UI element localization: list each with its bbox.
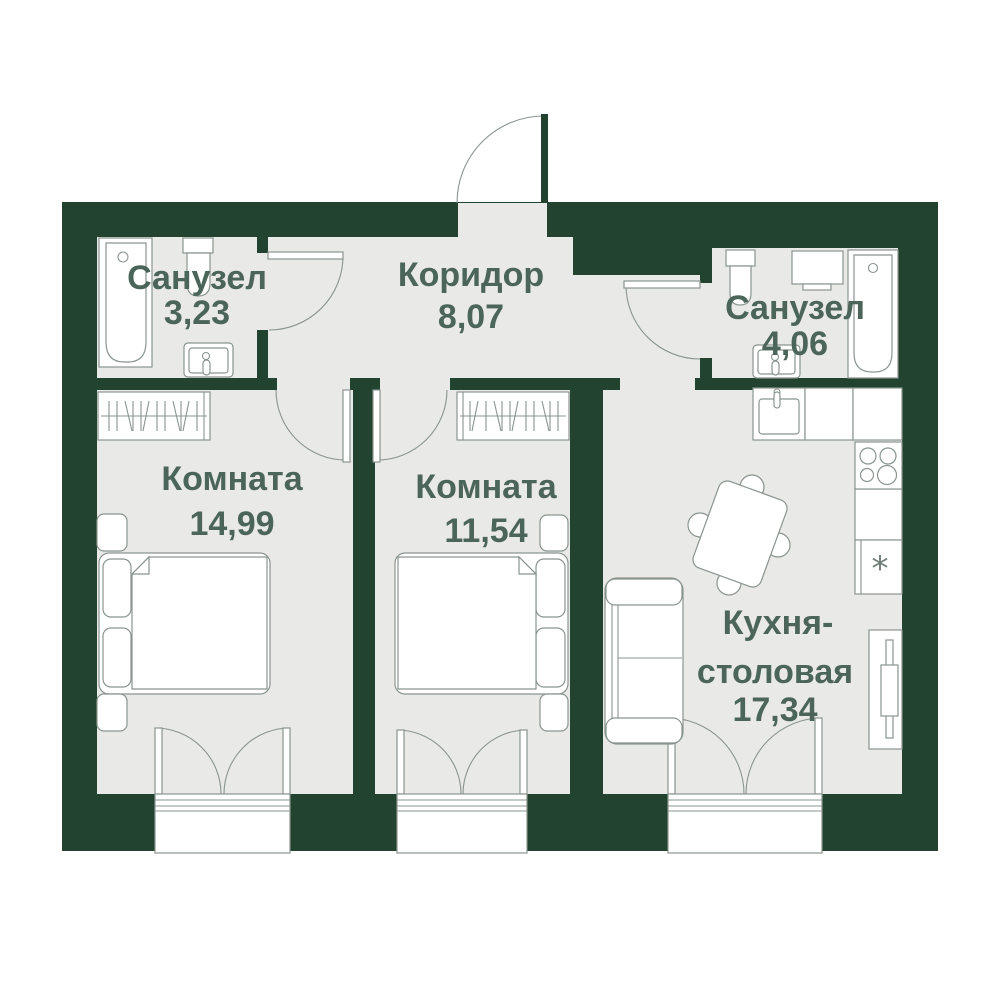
sofa-armrest — [606, 579, 682, 605]
bedroom-1-label: Комната — [161, 460, 303, 498]
floor-plan-drawing: * Санузел 3,23 Коридор 8,07 Санузел 4,06… — [0, 0, 1000, 1000]
corridor-floor-right — [572, 275, 700, 378]
bathroom-1-label: Санузел — [127, 259, 267, 297]
bedroom-2-door-opening — [380, 377, 450, 391]
wardrobe-2 — [457, 392, 569, 440]
burner — [878, 466, 897, 485]
bathroom-2-area: 4,06 — [762, 325, 828, 363]
faucet-icon — [203, 360, 210, 375]
counter-segment — [855, 489, 902, 540]
corridor-area: 8,07 — [438, 298, 504, 336]
bedroom-1-door-leaf — [343, 390, 350, 462]
bedroom-2-door-leaf — [373, 390, 380, 462]
nightstand — [97, 514, 127, 551]
bathroom-1-area: 3,23 — [164, 294, 230, 332]
entrance-recess-floor — [458, 203, 547, 238]
radiator — [869, 630, 902, 749]
toilet-tank — [726, 250, 755, 266]
window-frame — [155, 794, 290, 853]
burner — [880, 448, 896, 464]
stove — [855, 442, 902, 489]
pillow — [536, 628, 565, 687]
corridor-kitchen-opening — [620, 377, 695, 391]
nightstand — [97, 694, 127, 731]
bed-2 — [395, 553, 568, 694]
window-sash — [155, 728, 162, 794]
bathroom-2-label: Санузел — [725, 289, 865, 327]
sofa — [605, 578, 683, 744]
washing-machine — [792, 251, 843, 290]
bathroom-2-door-leaf — [624, 281, 700, 288]
pillow — [536, 559, 565, 617]
mattress — [398, 557, 536, 689]
kitchen-label-line1: Кухня- — [723, 604, 834, 642]
nightstand — [540, 694, 568, 731]
fridge-mark: * — [872, 549, 889, 589]
bed-1 — [99, 553, 270, 694]
window-sash — [283, 728, 290, 794]
burner — [860, 448, 876, 464]
bedroom-1-door-opening — [277, 377, 350, 391]
counter-segment — [853, 388, 902, 440]
burner — [861, 469, 874, 482]
fridge: * — [855, 540, 902, 594]
sofa-armrest — [606, 718, 682, 743]
kitchen-label-line2: столовая — [697, 653, 853, 691]
entrance-door — [457, 114, 548, 203]
sink-bathroom-1 — [184, 343, 233, 377]
entrance-door-leaf — [541, 114, 548, 203]
corridor-label: Коридор — [398, 256, 544, 294]
wardrobe-1 — [98, 392, 210, 440]
faucet-icon — [772, 361, 779, 375]
entrance-door-arc — [457, 116, 544, 203]
window-sash — [397, 730, 404, 794]
window-frame — [397, 794, 527, 853]
pillow — [103, 559, 131, 617]
kitchen-area: 17,34 — [732, 691, 817, 729]
counter-segment — [805, 388, 853, 440]
mattress — [132, 557, 267, 689]
bedroom-2-label: Комната — [415, 468, 557, 506]
bathroom-2-door-opening — [699, 283, 713, 358]
floor-plan: * Санузел 3,23 Коридор 8,07 Санузел 4,06… — [0, 0, 1000, 1000]
window-sash — [520, 730, 527, 794]
bedroom-1-area: 14,99 — [189, 505, 274, 543]
bathroom-1-door-leaf — [268, 252, 343, 259]
pillow — [103, 628, 131, 687]
toilet-tank — [183, 238, 213, 253]
faucet-icon — [774, 392, 780, 408]
window-frame — [668, 794, 822, 853]
nightstand — [540, 515, 568, 551]
bathtub-1 — [99, 238, 152, 367]
bedroom-2-area: 11,54 — [444, 512, 527, 550]
window-sash — [815, 718, 822, 794]
